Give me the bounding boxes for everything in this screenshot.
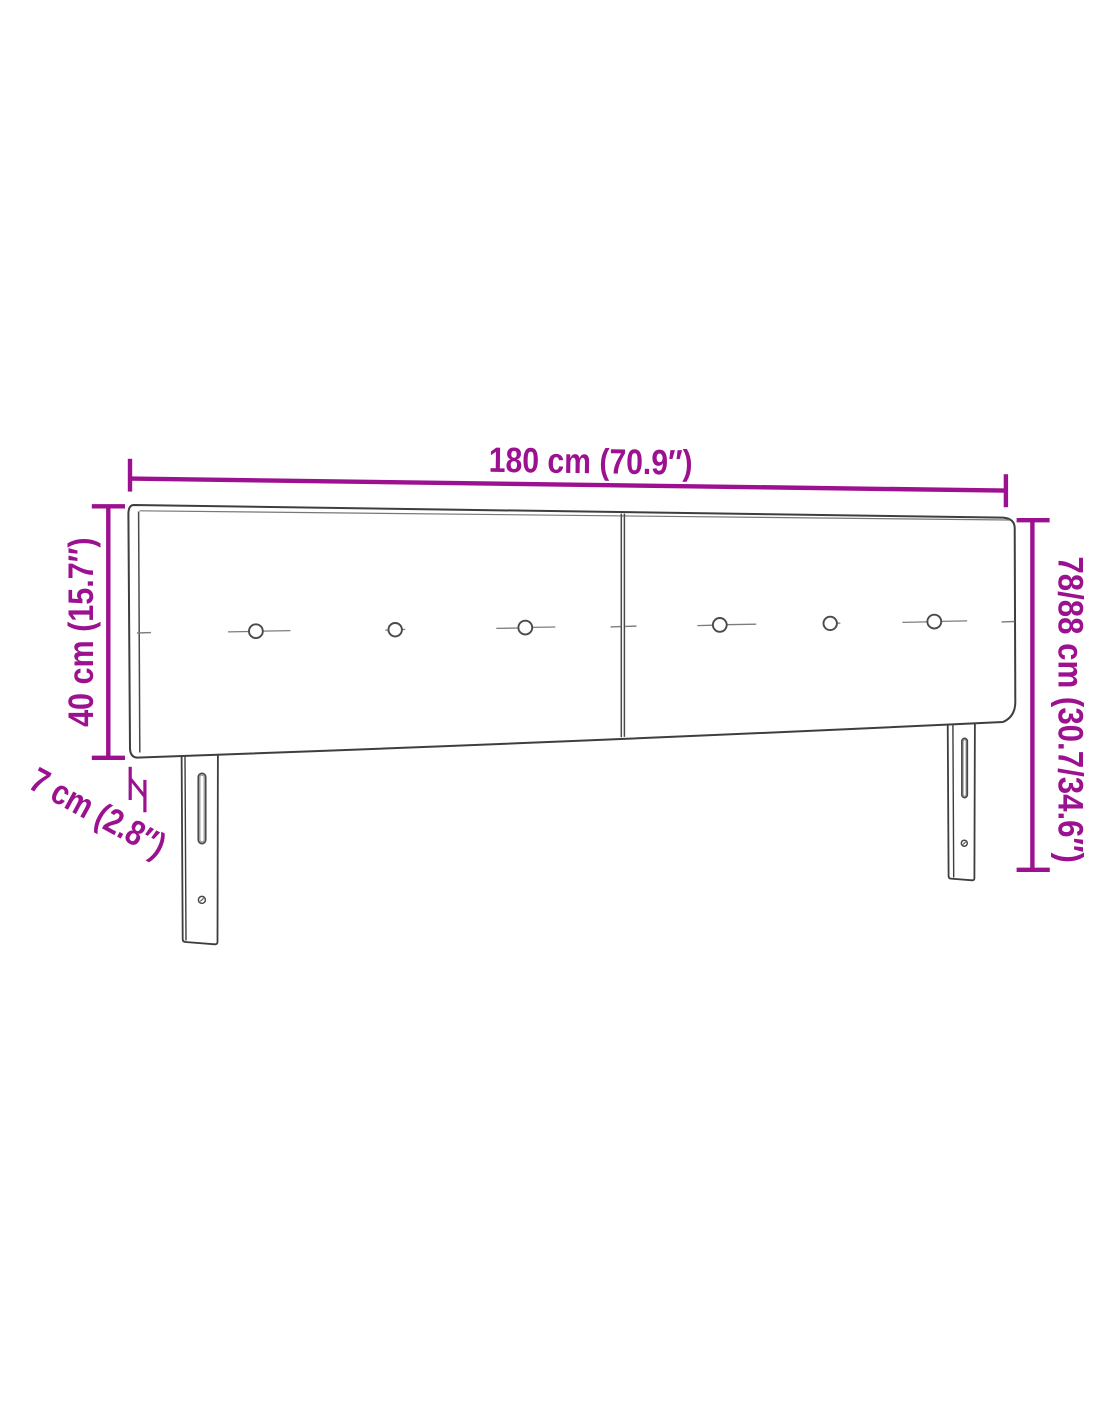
- svg-text:180 cm (70.9″): 180 cm (70.9″): [488, 440, 692, 483]
- svg-text:78/88 cm (30.7/34.6″): 78/88 cm (30.7/34.6″): [1050, 556, 1089, 863]
- svg-text:7 cm (2.8″): 7 cm (2.8″): [23, 760, 172, 866]
- svg-text:40 cm (15.7″): 40 cm (15.7″): [61, 537, 101, 726]
